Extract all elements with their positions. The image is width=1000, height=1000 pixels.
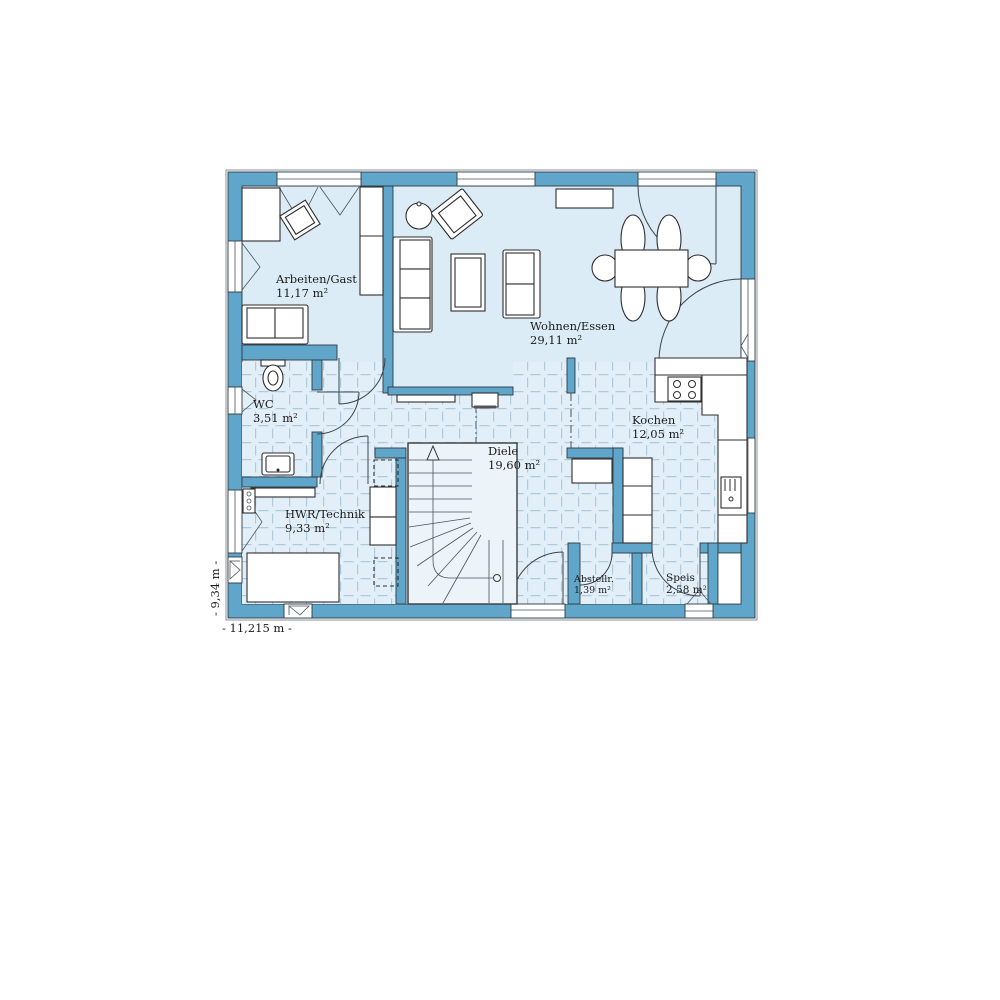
side-table: [406, 203, 432, 229]
room-label-arbeiten: Arbeiten/Gast 11,17 m²: [276, 273, 357, 300]
wall-wc-right-lower: [312, 432, 322, 477]
sofa-three-seat: [393, 237, 432, 332]
wall-abstell-speis: [632, 553, 642, 604]
vent-symbol-bottom-wall: [284, 604, 312, 618]
room-name: Wohnen/Essen: [530, 319, 615, 333]
wall-kochen-bottom-right: [700, 543, 741, 553]
window-wohnen-top: [457, 172, 535, 186]
wall-kochen-bottom-left: [612, 543, 652, 553]
room-label-kochen: Kochen 12,05 m²: [632, 414, 684, 441]
room-label-diele: Diele 19,60 m²: [488, 445, 540, 472]
tall-cabinets: [623, 458, 652, 543]
stove-icon: [668, 377, 701, 401]
room-name: Diele: [488, 444, 518, 458]
shelf: [251, 488, 315, 497]
room-name: WC: [253, 397, 274, 411]
wall-speis-right: [708, 543, 718, 604]
room-name: HWR/Technik: [285, 507, 365, 521]
installation-shaft: [718, 553, 741, 604]
room-name: Speis: [666, 572, 695, 584]
wall-wc-right-upper: [312, 360, 322, 390]
room-area: 11,17 m²: [276, 287, 357, 301]
cabinet: [360, 187, 383, 295]
room-area: 19,60 m²: [488, 459, 540, 473]
room-label-abstellraum: Abstellr. 1,39 m²: [574, 574, 614, 596]
room-area: 12,05 m²: [632, 428, 684, 442]
room-name: Arbeiten/Gast: [276, 272, 357, 286]
vent-symbol-left-wall: [228, 557, 242, 583]
coffee-table: [451, 254, 485, 311]
sofa-two-seat: [242, 305, 308, 344]
wall-wohnen-kochen-stub: [567, 358, 575, 393]
room-area: 1,39 m²: [574, 585, 614, 596]
room-label-wohnen: Wohnen/Essen 29,11 m²: [530, 320, 615, 347]
sofa-two-seat-right: [503, 250, 540, 318]
sink-icon: [262, 453, 294, 475]
shelf: [397, 395, 455, 402]
room-name: Kochen: [632, 413, 675, 427]
desk: [242, 188, 280, 241]
wall-arbeiten-wc: [242, 345, 337, 360]
wall-wc-hwr: [242, 477, 317, 487]
dimension-height: - 9,34 m -: [208, 561, 222, 616]
room-name: Abstellr.: [574, 574, 614, 585]
electric-panel: [243, 489, 255, 513]
dining-chair: [592, 255, 618, 281]
room-area: 2,58 m²: [666, 584, 707, 596]
floor-plan-drawing: [0, 0, 1000, 1000]
heating-unit: [370, 517, 396, 545]
room-area: 9,33 m²: [285, 522, 365, 536]
stair-newel-post: [494, 575, 501, 582]
room-label-hwr: HWR/Technik 9,33 m²: [285, 508, 365, 535]
dimension-width: - 11,215 m -: [222, 621, 292, 635]
room-area: 3,51 m²: [253, 412, 298, 426]
wardrobe: [572, 459, 612, 483]
room-area: 29,11 m²: [530, 334, 615, 348]
sideboard: [556, 189, 613, 208]
kitchen-sink-icon: [721, 477, 741, 508]
room-label-speis: Speis 2,58 m²: [666, 572, 707, 597]
water-heater: [370, 487, 396, 517]
wardrobe-bench: [472, 393, 498, 407]
floor-plan-page: Arbeiten/Gast 11,17 m² Wohnen/Essen 29,1…: [0, 0, 1000, 1000]
work-table: [247, 553, 339, 602]
room-label-wc: WC 3,51 m²: [253, 398, 298, 425]
wohnen-floor-extension: [393, 362, 513, 387]
wall-niche-top: [375, 448, 406, 458]
dining-chair: [685, 255, 711, 281]
dining-table: [615, 250, 688, 287]
wall-kochen-nook-side: [613, 448, 623, 545]
